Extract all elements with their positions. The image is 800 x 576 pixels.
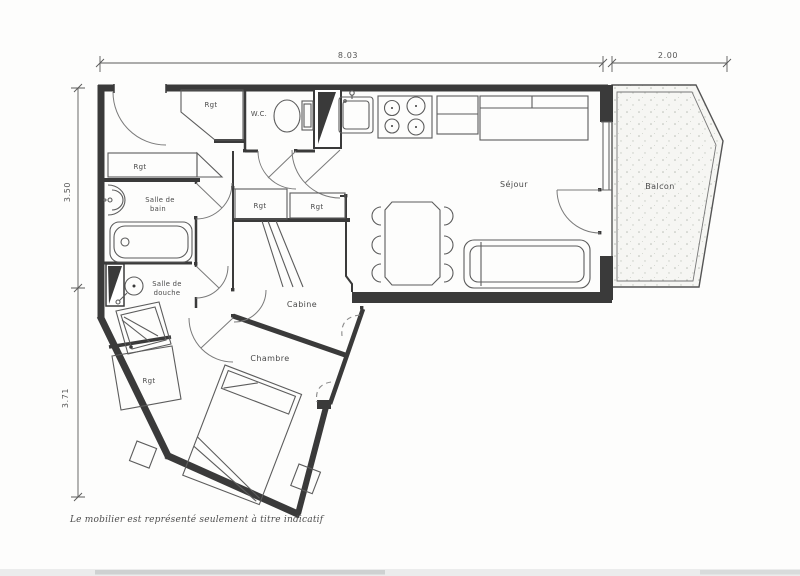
bathtub-icon bbox=[110, 222, 192, 262]
label-salle-de-bain-1: Salle de bbox=[145, 196, 175, 204]
dim-label-top-main: 8.03 bbox=[338, 51, 358, 60]
label-salle-de-douche-2: douche bbox=[154, 289, 181, 297]
label-chambre: Chambre bbox=[250, 354, 289, 363]
label-salle-de-douche-1: Salle de bbox=[152, 280, 182, 288]
cabine-bunk-lines bbox=[262, 221, 303, 287]
bathroom-fixtures bbox=[104, 100, 313, 354]
toilet-icon bbox=[274, 100, 313, 132]
kitchen-sink-icon bbox=[339, 91, 373, 133]
label-wc: W.C. bbox=[251, 110, 267, 118]
sejour-bottom-wall bbox=[352, 292, 612, 303]
label-sejour: Séjour bbox=[500, 179, 528, 189]
kitchen-counter bbox=[437, 96, 478, 134]
bathroom-door bbox=[196, 183, 232, 219]
entrance-door-arc bbox=[113, 92, 166, 145]
furniture-disclaimer-note: Le mobilier est représenté seulement à t… bbox=[69, 514, 325, 525]
entrance-jamb-caps bbox=[114, 84, 166, 93]
dim-label-top-balcony: 2.00 bbox=[658, 51, 678, 60]
label-rgt4: Rgt bbox=[254, 202, 267, 210]
chambre-door bbox=[189, 318, 233, 362]
scan-artifact-bar bbox=[0, 569, 800, 576]
label-rgt2: Rgt bbox=[134, 163, 147, 171]
label-balcon: Balcon bbox=[645, 182, 674, 191]
floor-plan-page: 8.03 2.00 3.50 3.71 W.C. Séjour Balcon S… bbox=[0, 0, 800, 576]
bed-icon bbox=[183, 365, 302, 505]
chairs-left bbox=[372, 207, 381, 282]
sejour-right-wall-top bbox=[600, 85, 613, 122]
cabine-right-wall bbox=[340, 196, 352, 292]
closet-rgt2 bbox=[108, 153, 222, 177]
kitchen-fixtures bbox=[339, 91, 478, 138]
dim-top-main: 8.03 bbox=[96, 51, 607, 72]
exterior-walls bbox=[98, 84, 613, 515]
ducts bbox=[106, 89, 341, 306]
label-cabine: Cabine bbox=[287, 300, 317, 309]
floor-plan-drawing: 8.03 2.00 3.50 3.71 W.C. Séjour Balcon S… bbox=[0, 0, 800, 576]
bench-top bbox=[480, 96, 588, 140]
chairs-right bbox=[444, 207, 453, 282]
nightstand-left bbox=[129, 441, 156, 468]
label-rgt3: Rgt bbox=[143, 377, 156, 385]
label-rgt1: Rgt bbox=[205, 101, 218, 109]
wc-door bbox=[258, 151, 296, 189]
sejour-right-wall-bottom bbox=[600, 256, 613, 300]
dim-label-left-upper: 3.50 bbox=[63, 182, 72, 202]
stove-icon bbox=[378, 96, 432, 138]
dashed-opening-lower bbox=[317, 382, 331, 402]
douche-bottom-wall bbox=[109, 337, 171, 347]
chambre-top-wall bbox=[233, 316, 348, 356]
washbasin-icon bbox=[104, 185, 125, 215]
sejour-window bbox=[601, 122, 612, 190]
room-labels: W.C. Séjour Balcon Salle de bain Salle d… bbox=[134, 101, 675, 385]
douche-door bbox=[196, 266, 228, 298]
dim-top-balcony: 2.00 bbox=[608, 51, 731, 72]
chambre-right-wall-lower bbox=[298, 407, 326, 514]
dining-table-icon bbox=[372, 202, 453, 285]
dim-left: 3.50 3.71 bbox=[61, 84, 85, 501]
bottom-diagonal-wall bbox=[166, 455, 300, 515]
label-salle-de-bain-2: bain bbox=[150, 205, 166, 213]
kitchen-hall-door bbox=[292, 150, 340, 198]
closet-rgt1 bbox=[181, 90, 243, 140]
dim-label-left-lower: 3.71 bbox=[61, 388, 70, 408]
label-rgt5: Rgt bbox=[311, 203, 324, 211]
balcony-door bbox=[557, 190, 600, 233]
sofa-icon bbox=[464, 240, 590, 288]
